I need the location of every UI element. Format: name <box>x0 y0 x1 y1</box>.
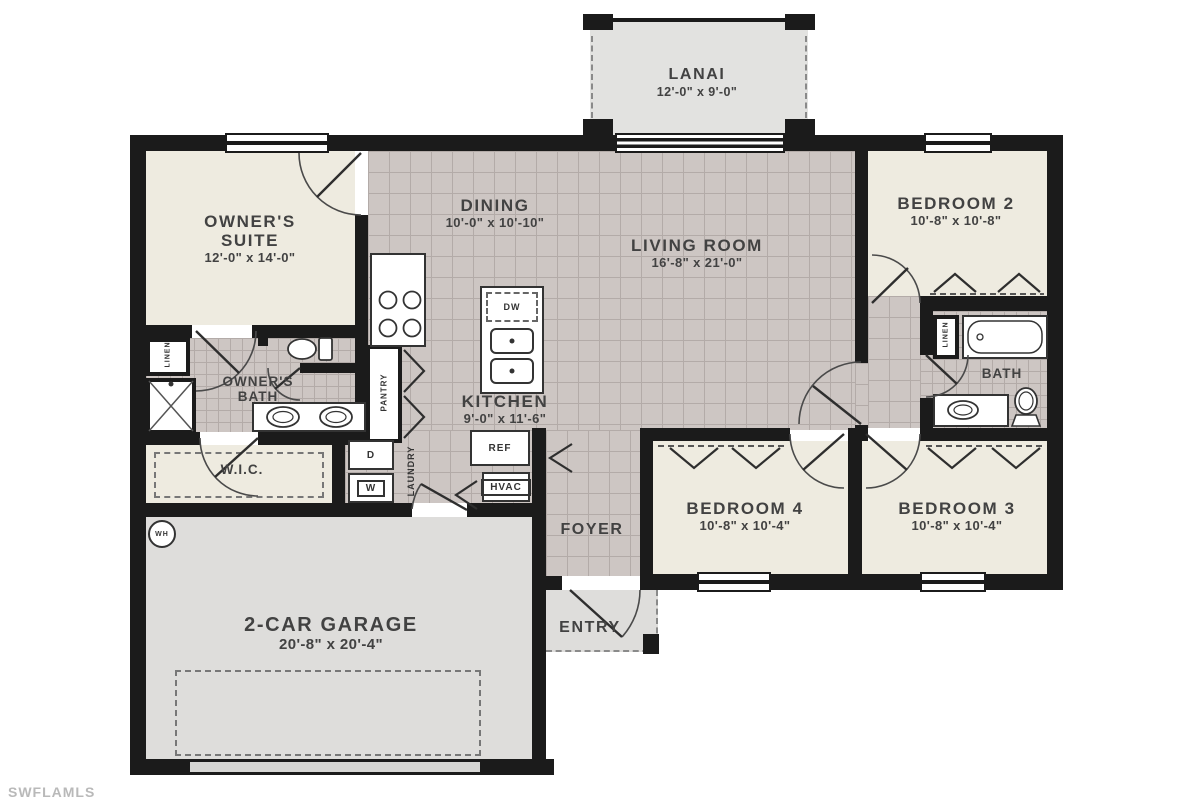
room-dims: 10'-8" x 10'-8" <box>846 214 1066 229</box>
label-laundry: LAUNDRY <box>406 436 416 506</box>
wall-segment <box>585 18 813 22</box>
wall-segment <box>920 296 1047 311</box>
lanai-screen-wall <box>805 36 807 118</box>
label-owners-suite: OWNER'S SUITE 12'-0" x 14'-0" <box>185 212 315 266</box>
wall-segment <box>546 576 562 590</box>
wall-segment <box>355 215 368 341</box>
entry-post <box>643 634 659 654</box>
room-name: BEDROOM 2 <box>846 194 1066 213</box>
label-pantry: PANTRY <box>380 363 389 423</box>
water-heater: WH <box>148 520 176 548</box>
hvac-label: HVAC <box>481 479 531 496</box>
label-wic: W.I.C. <box>182 462 302 477</box>
room-name: LANAI <box>597 66 797 84</box>
bath-vanity <box>933 394 1009 427</box>
lanai-post <box>583 119 613 136</box>
room-name: OWNER'S BATH <box>200 374 316 404</box>
room-name: BEDROOM 3 <box>847 499 1067 518</box>
room-name: LIVING ROOM <box>627 236 767 255</box>
kitchen-sink-basin <box>490 358 534 384</box>
garage-door-outline <box>175 670 481 756</box>
dishwasher: DW <box>486 292 538 322</box>
room-dims: 12'-0" x 14'-0" <box>185 251 315 266</box>
window <box>924 133 992 153</box>
wall-segment <box>300 363 368 373</box>
label-living-room: LIVING ROOM 16'-8" x 21'-0" <box>627 236 767 271</box>
wall-segment <box>920 398 933 428</box>
label-entry: ENTRY <box>530 619 650 637</box>
bathtub <box>962 315 1048 359</box>
wall-segment <box>640 428 790 441</box>
window <box>920 572 986 592</box>
label-linen-bath: LINEN <box>943 305 950 365</box>
room-dims: 12'-0" x 9'-0" <box>597 85 797 99</box>
room-dims: 10'-8" x 10'-4" <box>847 519 1067 534</box>
water-heater-label: WH <box>155 531 169 538</box>
watermark: SWFLAMLS <box>8 784 95 800</box>
wall-segment <box>130 135 146 775</box>
wall-segment <box>130 325 192 338</box>
room-dims: 10'-0" x 10'-10" <box>395 216 595 231</box>
window <box>697 572 771 592</box>
wall-segment <box>258 332 268 346</box>
room-name: ENTRY <box>530 619 650 637</box>
garage-door <box>190 762 480 772</box>
dryer: D <box>348 440 394 470</box>
wall-segment <box>855 151 868 363</box>
refrigerator: REF <box>470 430 530 466</box>
label-lanai: LANAI 12'-0" x 9'-0" <box>597 66 797 99</box>
label-bedroom2: BEDROOM 2 10'-8" x 10'-8" <box>846 194 1066 229</box>
hallway-opening-floor <box>855 363 868 425</box>
wall-segment <box>332 445 345 503</box>
room-name: FOYER <box>532 521 652 539</box>
label-dining: DINING 10'-0" x 10'-10" <box>395 196 595 231</box>
kitchen-sink-basin <box>490 328 534 354</box>
dryer-label: D <box>367 450 375 461</box>
room-name: W.I.C. <box>182 462 302 477</box>
sliding-glass-door <box>615 133 785 153</box>
hvac-unit: HVAC <box>482 472 530 502</box>
floor-plan-canvas: DW REF HVAC D W WH <box>0 0 1200 805</box>
washer-label: W <box>357 480 385 497</box>
wall-segment <box>130 503 412 517</box>
washer: W <box>348 473 394 503</box>
room-dims: 10'-8" x 10'-4" <box>635 519 855 534</box>
room-name: BEDROOM 4 <box>635 499 855 518</box>
wall-segment <box>252 325 368 338</box>
label-bedroom4: BEDROOM 4 10'-8" x 10'-4" <box>635 499 855 534</box>
label-bedroom3: BEDROOM 3 10'-8" x 10'-4" <box>847 499 1067 534</box>
label-linen-owner: LINEN <box>165 325 172 385</box>
lanai-post <box>785 119 815 136</box>
label-garage: 2-CAR GARAGE 20'-8" x 20'-4" <box>181 614 481 654</box>
label-owners-bath: OWNER'S BATH <box>200 374 316 404</box>
lanai-post <box>583 14 613 30</box>
lanai-post <box>785 14 815 30</box>
room-dining-living-floor <box>368 151 855 430</box>
wall-segment <box>532 428 546 775</box>
lanai-screen-wall <box>591 36 593 118</box>
room-dims: 16'-8" x 21'-0" <box>627 256 767 271</box>
refrigerator-label: REF <box>489 443 512 454</box>
hallway-floor <box>868 296 920 428</box>
room-foyer-floor <box>546 430 642 576</box>
room-name: 2-CAR GARAGE <box>181 614 481 636</box>
room-name: KITCHEN <box>405 392 605 411</box>
room-name: DINING <box>395 196 595 215</box>
shower <box>146 378 196 434</box>
wall-segment <box>920 311 933 355</box>
room-dims: 20'-8" x 20'-4" <box>181 637 481 654</box>
owners-vanity <box>252 402 366 432</box>
label-bath: BATH <box>952 366 1052 381</box>
wall-segment <box>920 428 1047 441</box>
room-dims: 9'-0" x 11'-6" <box>405 412 605 427</box>
label-foyer: FOYER <box>532 521 652 539</box>
room-name: BATH <box>952 366 1052 381</box>
room-name: OWNER'S SUITE <box>185 212 315 250</box>
wall-segment <box>467 503 540 517</box>
label-kitchen: KITCHEN 9'-0" x 11'-6" <box>405 392 605 427</box>
window <box>225 133 329 153</box>
dishwasher-label: DW <box>504 302 521 312</box>
kitchen-counter-range <box>370 253 426 347</box>
